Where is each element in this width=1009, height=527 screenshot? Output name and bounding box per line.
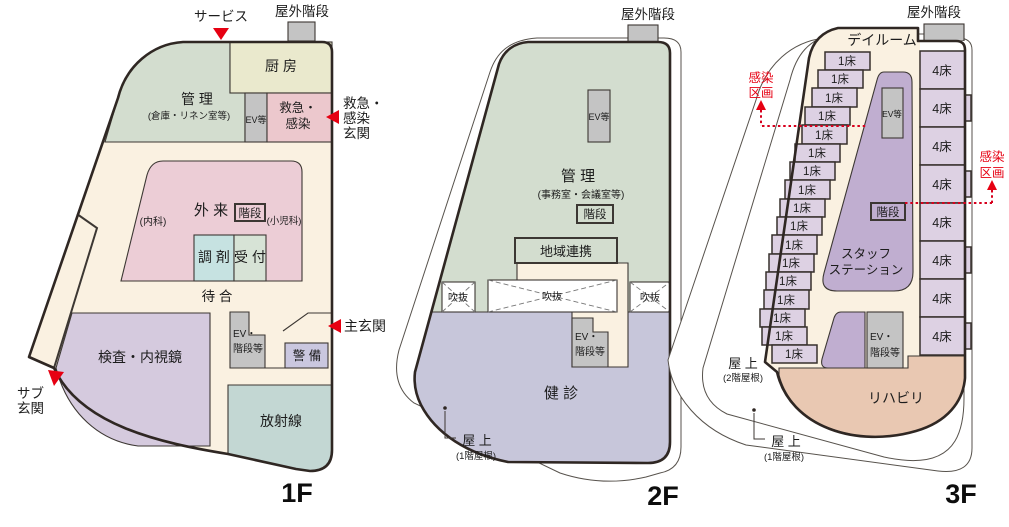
f2-ev-stairs-label-1: EV・ bbox=[575, 332, 598, 343]
f1-ev-label: EV等 bbox=[245, 114, 266, 125]
f3-1bed-label: 1床 bbox=[785, 238, 803, 252]
f3-staff-station-label-1: スタッフ bbox=[841, 247, 891, 261]
f3-ev-stairs-label-2: 階段等 bbox=[870, 346, 900, 359]
f2-void-left-label: 吹抜 bbox=[448, 291, 468, 304]
f1-floor-label: 1F bbox=[281, 478, 313, 508]
f2-floor-label: 2F bbox=[647, 481, 679, 511]
f1-ev-stairs-label-2: 階段等 bbox=[233, 342, 263, 355]
f2-outdoor-stairs-box bbox=[628, 25, 658, 42]
f1-emergency-entrance-label-3: 玄関 bbox=[343, 125, 370, 141]
f1-outdoor-stairs-box bbox=[288, 22, 315, 41]
f3-1bed-label: 1床 bbox=[777, 293, 795, 307]
f1-ev-stairs-label-1: EV・ bbox=[233, 329, 256, 340]
f1-sub-entrance-label-2: 玄関 bbox=[17, 400, 44, 416]
f3-1bed-label: 1床 bbox=[803, 164, 821, 178]
f2-rooftop-sub-label: (1階屋根) bbox=[456, 450, 496, 462]
f1-reception-label: 受 付 bbox=[234, 249, 266, 265]
f1-dispensary-label: 調 剤 bbox=[198, 249, 230, 265]
f1-outpatient-label: 外 来 bbox=[194, 202, 228, 219]
f1-emergency-label-2: 感染 bbox=[285, 116, 311, 131]
f3-1bed-label: 1床 bbox=[798, 183, 816, 197]
f1-admin-area bbox=[105, 42, 245, 142]
f2-ev-stairs-label-2: 階段等 bbox=[575, 345, 605, 358]
f1-sub-entrance-label-1: サブ bbox=[17, 385, 44, 401]
f2-admin-label: 管 理 bbox=[561, 168, 595, 185]
f3-1bed-label: 1床 bbox=[808, 146, 826, 160]
f3-ev-stairs-label-1: EV・ bbox=[870, 332, 893, 343]
f3-infection-label-right-1: 感染 bbox=[979, 149, 1005, 164]
f3-rooftop2-label: 屋 上 bbox=[728, 356, 758, 371]
f1-radiology-label: 放射線 bbox=[260, 413, 302, 429]
f2-leader-dot-icon bbox=[443, 406, 447, 410]
f3-4bed-label: 4床 bbox=[932, 292, 952, 306]
f2-rooftop-label: 屋 上 bbox=[462, 433, 492, 448]
f3-1bed-label: 1床 bbox=[775, 329, 793, 343]
f2-stairs-label: 階段 bbox=[584, 207, 607, 221]
f2-checkup-label: 健 診 bbox=[544, 385, 578, 402]
f3-floor-label: 3F bbox=[945, 479, 977, 509]
f3-1bed-label: 1床 bbox=[831, 72, 849, 86]
f3-rooftop2-sub-label: (2階屋根) bbox=[723, 372, 763, 384]
f3-1bed-label: 1床 bbox=[773, 311, 791, 325]
f3-1bed-label: 1床 bbox=[825, 91, 843, 105]
floorplan-diagram: サービス 屋外階段 厨 房 管 理 (倉庫・リネン室等) EV等 救急・ 感染 … bbox=[0, 0, 1009, 527]
f3-1bed-label: 1床 bbox=[779, 274, 797, 288]
f3-outdoor-stairs-label: 屋外階段 bbox=[907, 5, 961, 20]
f3-stairs-label: 階段 bbox=[877, 205, 900, 219]
f1-main-entrance-label: 主玄関 bbox=[344, 318, 386, 334]
f3-staff-station-label-2: ステーション bbox=[829, 263, 904, 277]
f2-admin-sub-label: (事務室・会議室等) bbox=[538, 188, 625, 201]
floorplan-svg: サービス 屋外階段 厨 房 管 理 (倉庫・リネン室等) EV等 救急・ 感染 … bbox=[0, 0, 1009, 527]
f3-1bed-label: 1床 bbox=[790, 219, 808, 233]
f1-exam-area bbox=[56, 313, 210, 446]
f3-leader-dot-icon bbox=[752, 408, 756, 412]
f3-ev-label: EV等 bbox=[882, 109, 902, 119]
f3-infection-label-left-2: 区画 bbox=[748, 86, 773, 100]
f3-canopy-strip bbox=[920, 41, 965, 51]
f3-4bed-label: 4床 bbox=[932, 330, 952, 344]
f1-service-label: サービス bbox=[194, 9, 248, 24]
f1-exam-label: 検査・内視鏡 bbox=[98, 349, 182, 365]
f1-emergency-entrance-label-1: 救急・ bbox=[343, 96, 384, 111]
f3-1bed-label: 1床 bbox=[818, 109, 836, 123]
f3-1bed-label: 1床 bbox=[782, 256, 800, 270]
f3-dayroom-label: デイルーム bbox=[847, 32, 917, 48]
f3-infection-label-left-1: 感染 bbox=[748, 70, 774, 85]
f3-4bed-label: 4床 bbox=[932, 64, 952, 78]
floor-3f: 4床 4床 4床 4床 4床 4床 4床 4床 bbox=[668, 5, 1005, 509]
f3-4bed-label: 4床 bbox=[932, 216, 952, 230]
f3-infection-label-right-2: 区画 bbox=[979, 166, 1004, 180]
f3-1bed-label: 1床 bbox=[838, 54, 856, 68]
floor-2f: 屋外階段 EV等 管 理 (事務室・会議室等) 階段 地域連携 吹抜 吹抜 吹抜… bbox=[397, 7, 681, 511]
f3-4bed-label: 4床 bbox=[932, 178, 952, 192]
f3-rooftop1-sub-label: (1階屋根) bbox=[764, 451, 804, 463]
f3-rehab-label: リハビリ bbox=[868, 390, 924, 406]
f1-stairs-label: 階段 bbox=[239, 206, 262, 220]
floor-1f: サービス 屋外階段 厨 房 管 理 (倉庫・リネン室等) EV等 救急・ 感染 … bbox=[17, 4, 386, 508]
f2-void-center-label: 吹抜 bbox=[542, 290, 562, 303]
f2-regional-label: 地域連携 bbox=[540, 244, 592, 259]
f1-outdoor-stairs-label: 屋外階段 bbox=[275, 4, 329, 19]
f1-internal-medicine-label: (内科) bbox=[140, 215, 167, 228]
f2-outdoor-stairs-label: 屋外階段 bbox=[621, 7, 675, 22]
f1-kitchen-label: 厨 房 bbox=[265, 58, 297, 74]
f3-4bed-label: 4床 bbox=[932, 102, 952, 116]
f3-4bed-label: 4床 bbox=[932, 140, 952, 154]
f1-pediatrics-label: (小児科) bbox=[267, 215, 302, 227]
f1-admin-label: 管 理 bbox=[181, 91, 213, 107]
f1-emergency-entrance-label-2: 感染 bbox=[343, 110, 370, 126]
f2-ev-label: EV等 bbox=[588, 111, 609, 122]
f1-emergency-label-1: 救急・ bbox=[279, 100, 317, 115]
f3-rooftop1-label: 屋 上 bbox=[771, 434, 801, 449]
f3-4bed-label: 4床 bbox=[932, 254, 952, 268]
f1-security-label: 警 備 bbox=[293, 348, 321, 363]
f3-outdoor-stairs-box bbox=[924, 24, 964, 41]
f3-1bed-label: 1床 bbox=[785, 347, 803, 361]
f2-void-right-label: 吹抜 bbox=[640, 291, 660, 304]
f3-infection-arrow-icon-right bbox=[987, 180, 997, 190]
f3-1bed-label: 1床 bbox=[815, 128, 833, 142]
f1-service-arrow-icon bbox=[213, 28, 229, 40]
f1-waiting-label: 待 合 bbox=[202, 289, 233, 304]
f3-1bed-label: 1床 bbox=[793, 201, 811, 215]
f1-admin-sub-label: (倉庫・リネン室等) bbox=[148, 110, 230, 122]
